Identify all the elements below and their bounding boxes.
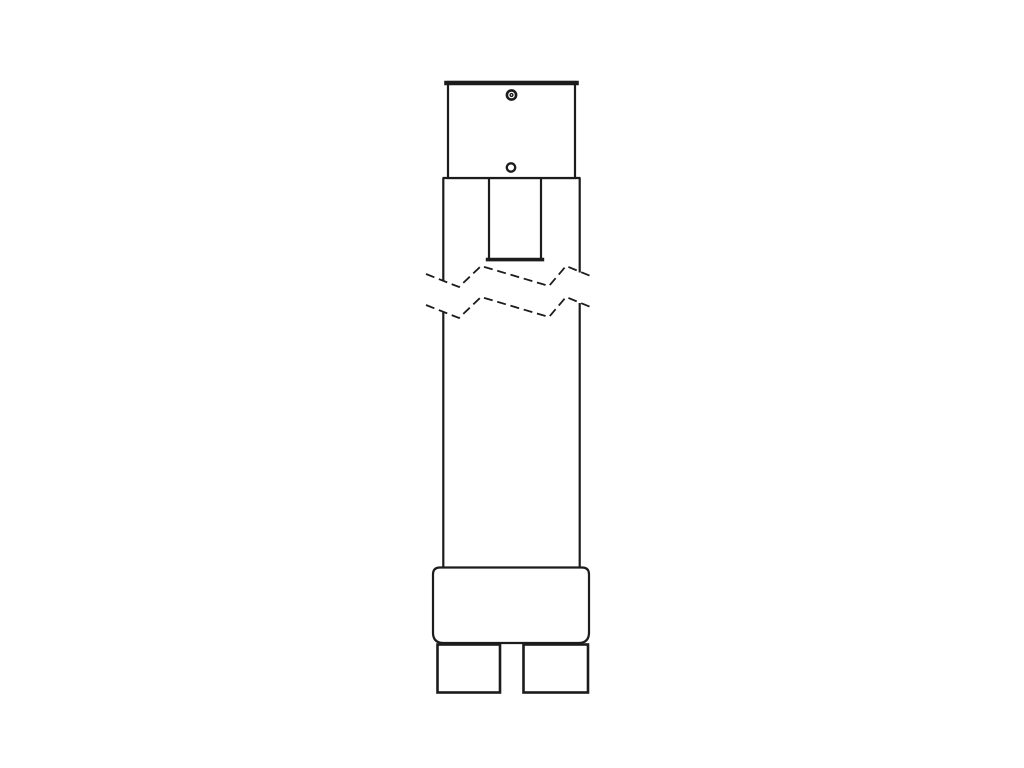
break-line-lower bbox=[426, 297, 593, 318]
base-collar bbox=[433, 568, 589, 644]
screw-head-glint bbox=[511, 94, 512, 95]
break-line-upper bbox=[426, 266, 593, 287]
technical-drawing-svg bbox=[0, 0, 1024, 768]
diagram-canvas bbox=[0, 0, 1024, 768]
left-foot bbox=[438, 645, 501, 693]
pilot-hole bbox=[507, 163, 515, 171]
right-foot bbox=[524, 645, 589, 693]
